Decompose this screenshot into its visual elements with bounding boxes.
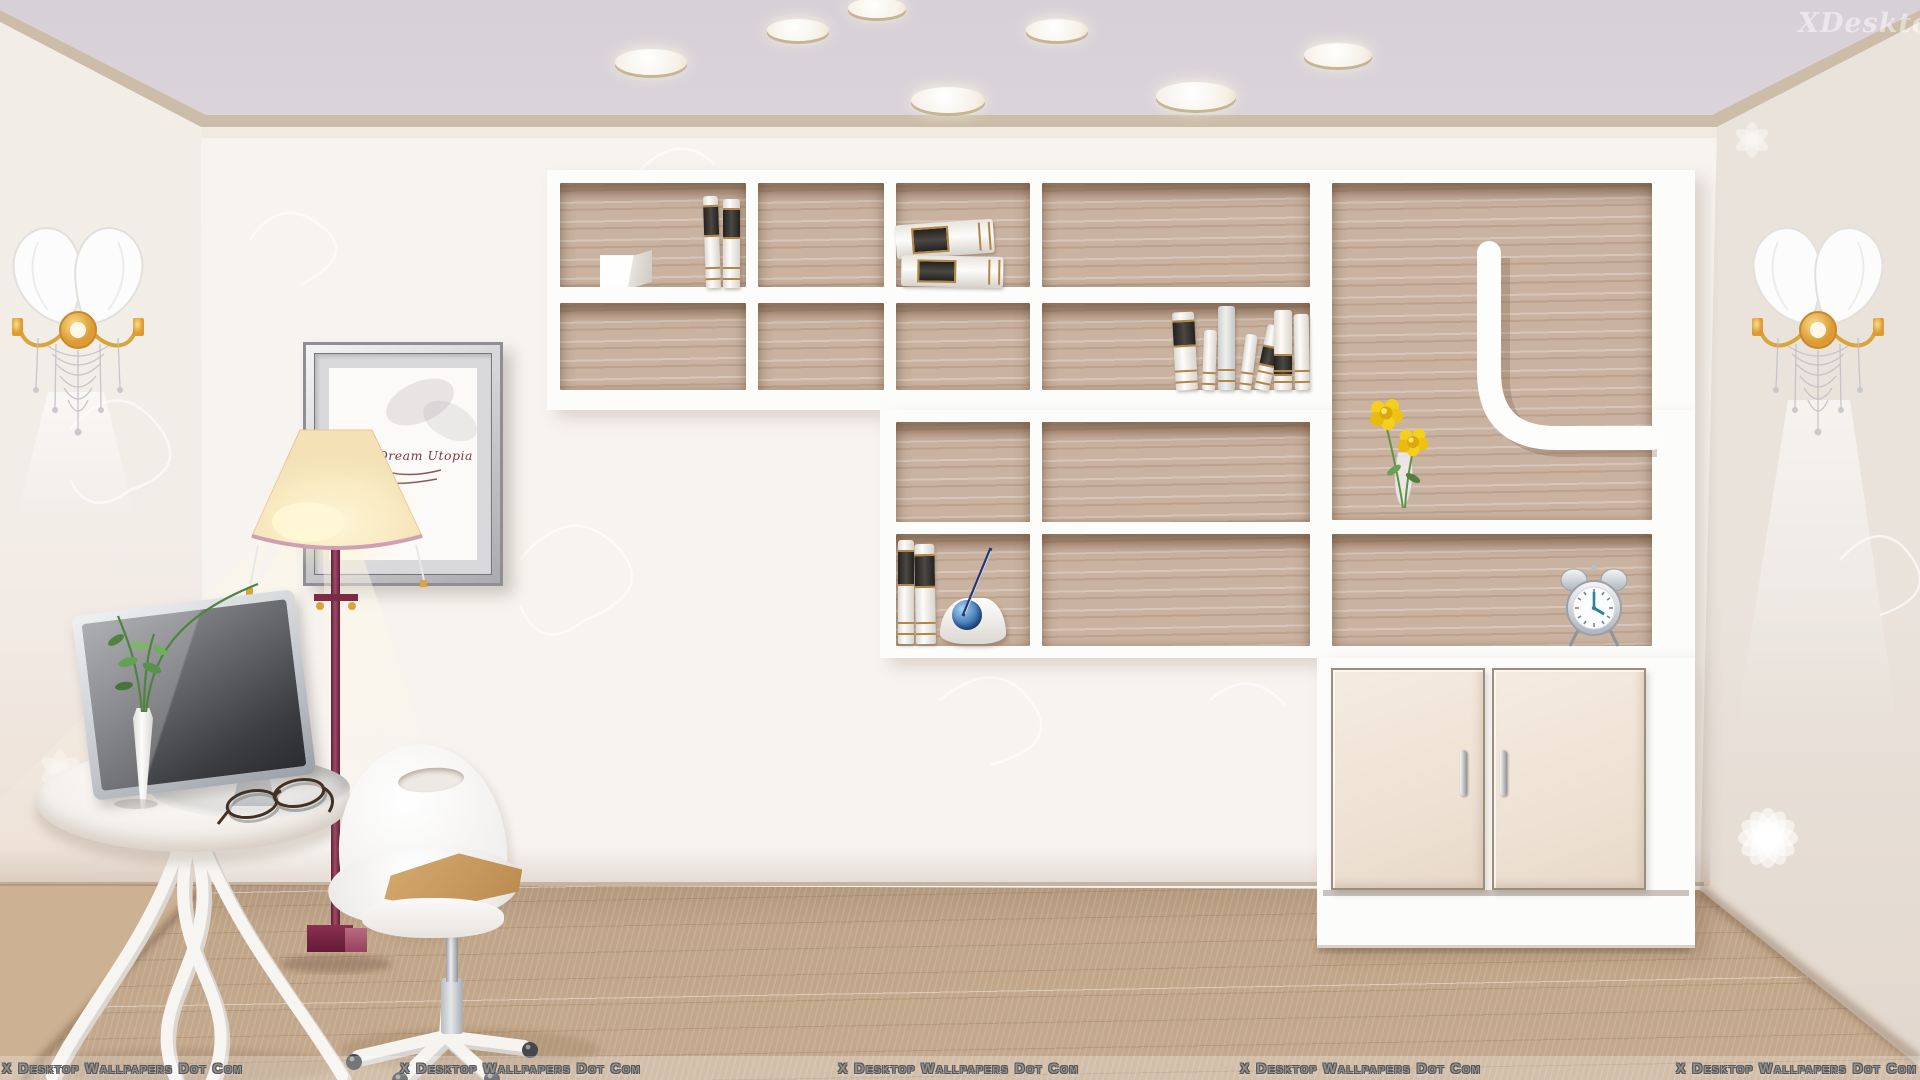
room-illustration: ital Dream Utopia <box>0 0 1920 1080</box>
bottom-watermark: X Desktop Wallpapers Dot Com <box>838 1060 1079 1077</box>
shelf-cell <box>560 303 746 390</box>
globe-ornament <box>952 600 982 630</box>
ceiling-light <box>1026 19 1088 41</box>
cabinet-plinth-shadow <box>1323 890 1689 896</box>
ceiling-light <box>615 49 687 75</box>
shelf-cell <box>1042 422 1310 522</box>
shelf-cell <box>1042 534 1310 646</box>
book-spine <box>1172 312 1198 391</box>
bottom-watermark: X Desktop Wallpapers Dot Com <box>1240 1060 1481 1077</box>
cabinet-door-right <box>1492 668 1646 890</box>
book-spine <box>1294 314 1310 390</box>
book-spine <box>914 544 936 644</box>
ceiling-light <box>1304 43 1372 67</box>
bottom-watermark: X Desktop Wallpapers Dot Com <box>400 1060 641 1077</box>
cabinet-handle-left <box>1460 750 1467 796</box>
shelf-cell <box>1332 534 1652 646</box>
ceiling-light <box>1156 82 1236 110</box>
bottom-watermark: X Desktop Wallpapers Dot Com <box>2 1060 243 1077</box>
ceiling-light <box>911 87 985 113</box>
book-spine <box>1274 310 1292 390</box>
ceiling-light <box>767 19 829 41</box>
book-spine <box>901 255 1004 288</box>
corner-watermark: XDesktop <box>1798 8 1920 39</box>
shelf-cell <box>896 303 1030 390</box>
shelf-cell <box>1042 183 1310 287</box>
book-spine <box>1202 330 1217 390</box>
book-spine <box>723 199 740 288</box>
book-spine <box>898 540 914 644</box>
shelf-cell <box>758 303 884 390</box>
book-spine <box>1218 306 1235 390</box>
shelf-cell <box>896 422 1030 522</box>
shelf-cell <box>1332 183 1652 520</box>
monitor-screen <box>82 599 307 791</box>
shelf-cell <box>758 183 884 287</box>
chair-gaslift-lower <box>441 978 463 1034</box>
computer-monitor <box>72 589 317 801</box>
book-spine <box>895 219 995 260</box>
lamp-glow <box>225 420 455 600</box>
book-spine <box>703 196 721 288</box>
cabinet-handle-right <box>1500 750 1507 796</box>
chair-seat-front <box>362 898 504 938</box>
storage-cube <box>600 250 652 287</box>
bottom-watermark: X Desktop Wallpapers Dot Com <box>1676 1060 1917 1077</box>
lamp-base-block <box>345 928 367 952</box>
